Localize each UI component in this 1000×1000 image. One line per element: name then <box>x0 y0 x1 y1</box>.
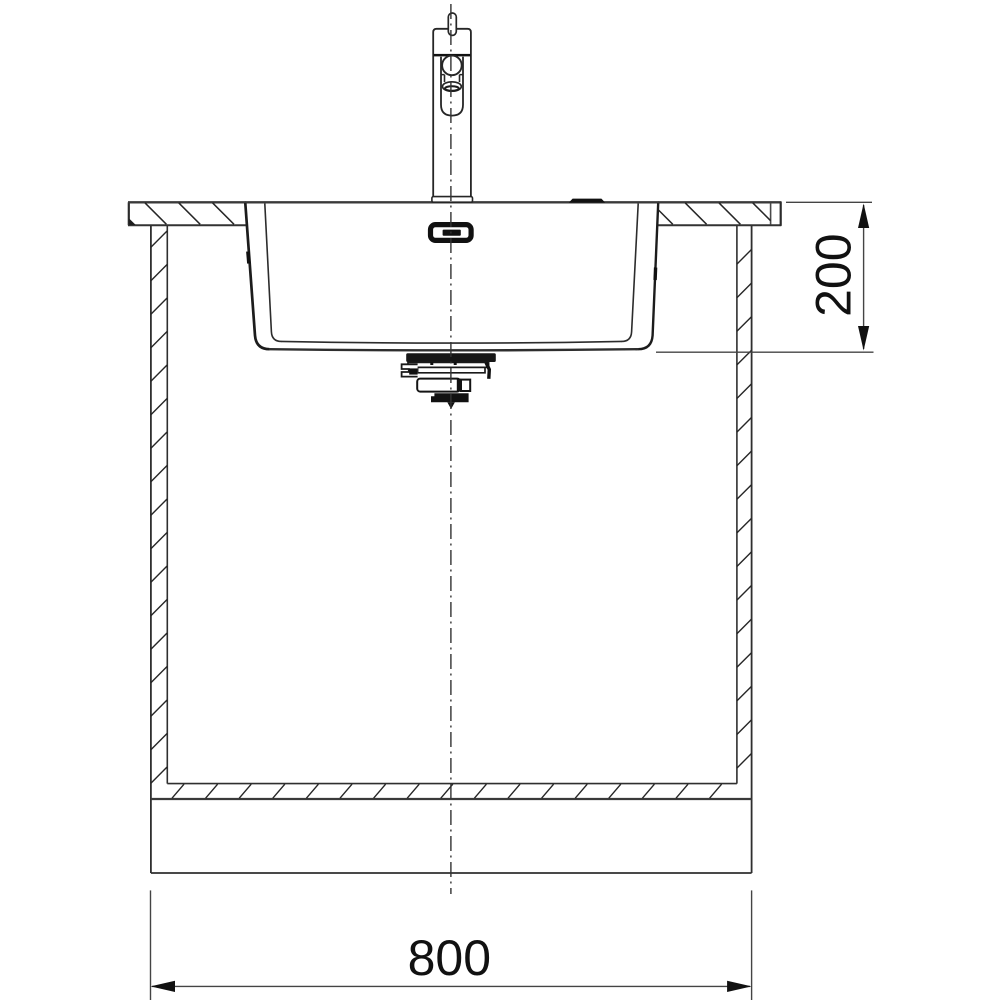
svg-text:200: 200 <box>805 233 861 316</box>
svg-text:800: 800 <box>408 930 491 986</box>
